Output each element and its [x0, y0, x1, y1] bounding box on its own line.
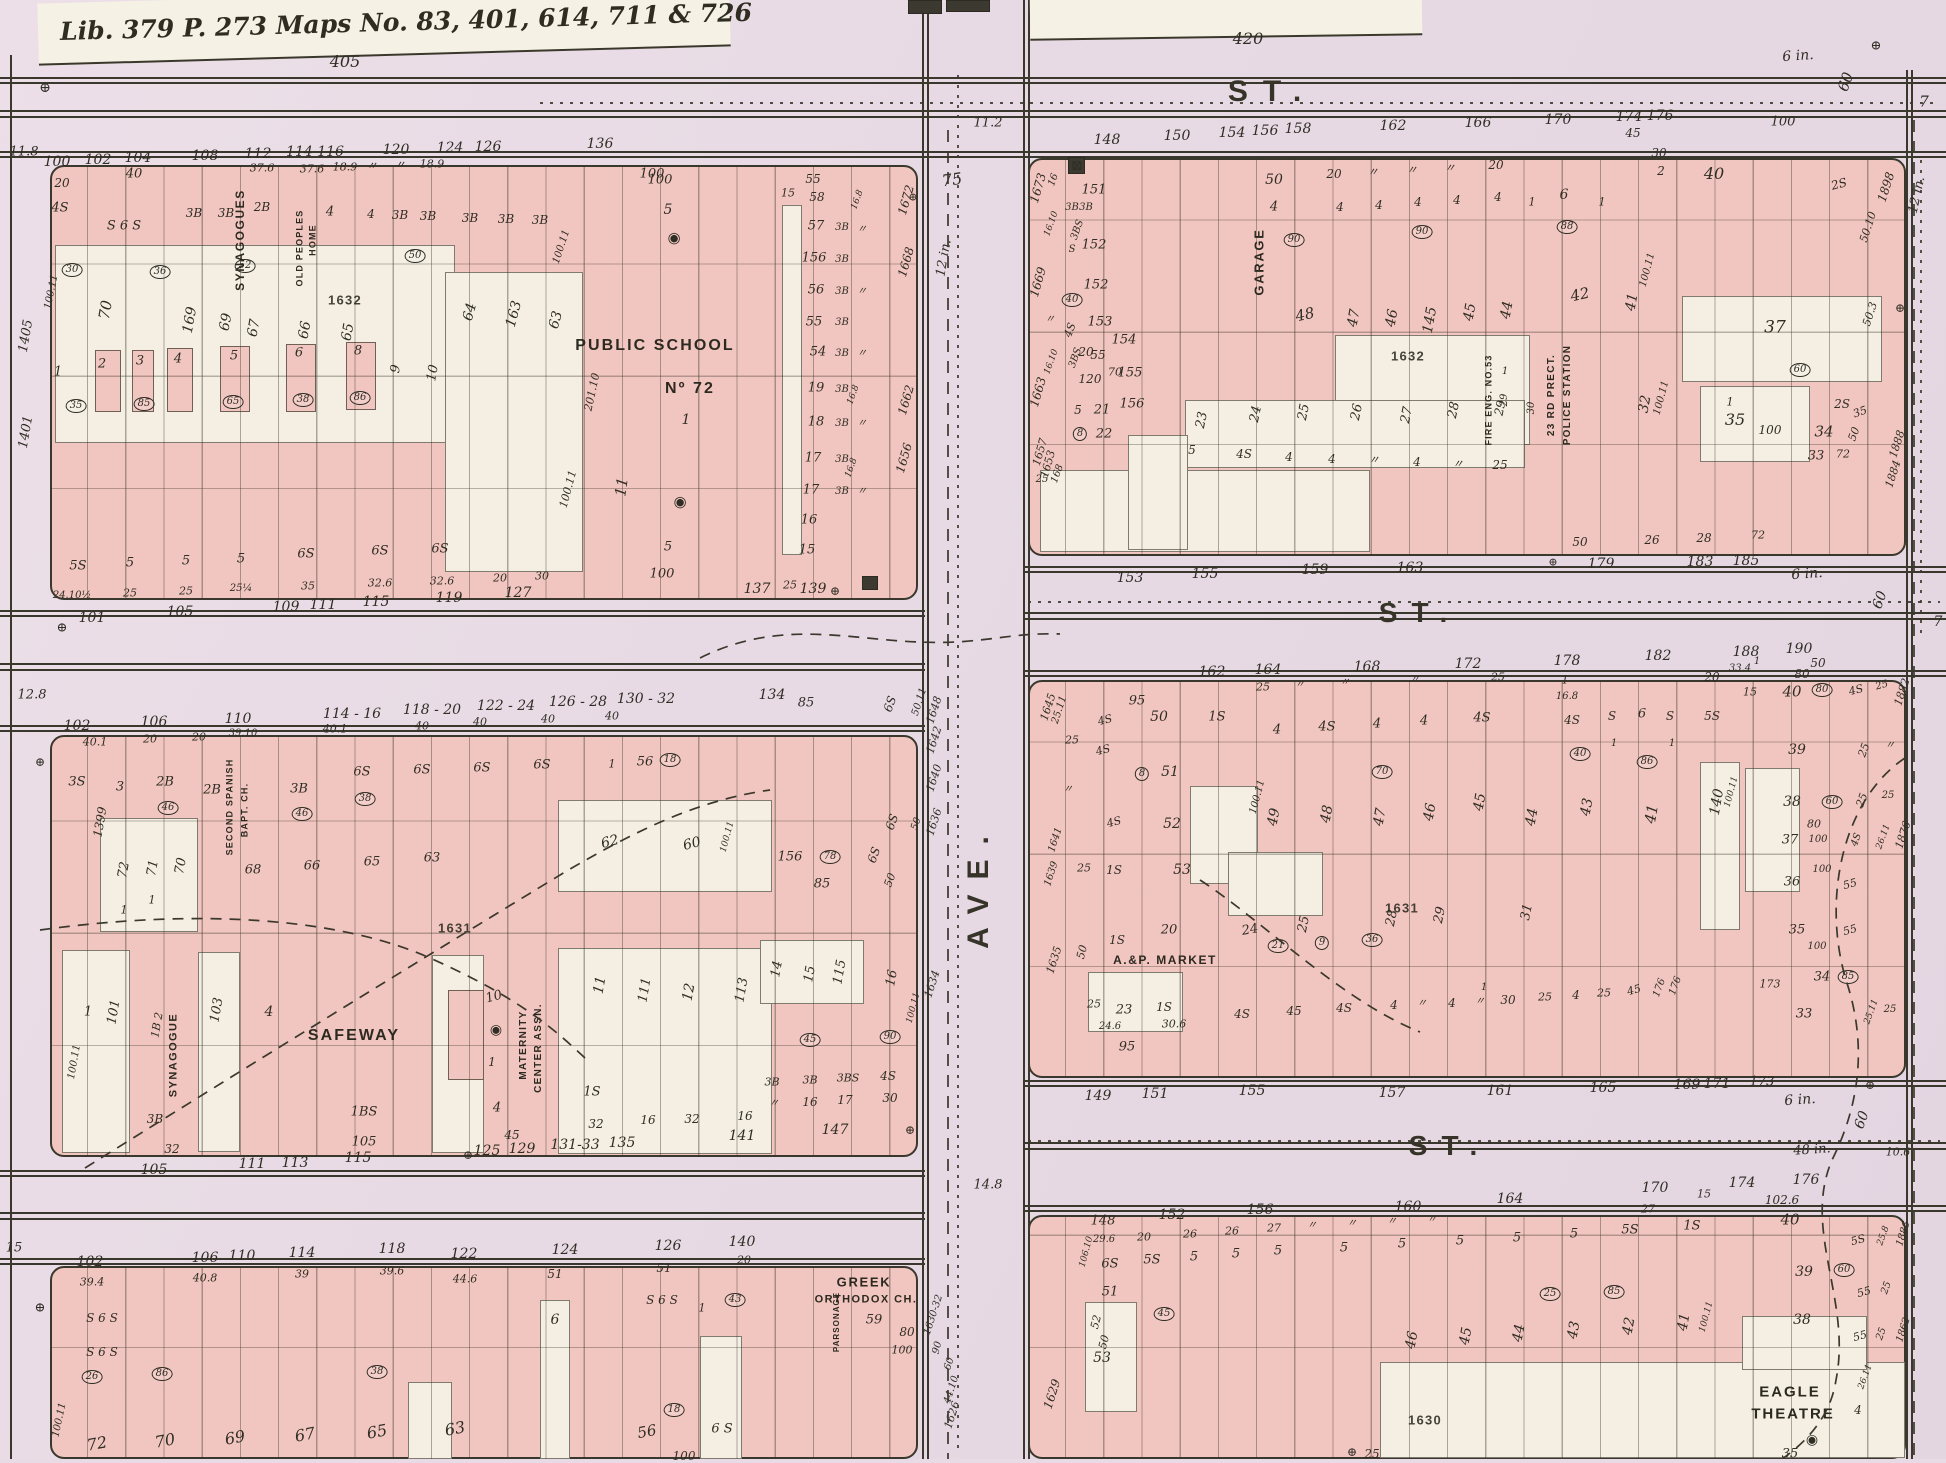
circled-lot-number: 38: [367, 1365, 388, 1379]
lot-annotation: 3B: [498, 213, 514, 225]
lot-annotation: 20: [1488, 159, 1503, 171]
street-label-top: ST.: [1228, 77, 1316, 107]
lot-annotation: 20: [1161, 924, 1178, 937]
lot-annotation: 〃: [1445, 163, 1456, 174]
lot-annotation: 4: [1854, 1404, 1862, 1416]
lot-annotation: 153: [1117, 571, 1144, 585]
lot-annotation: 148: [1091, 1215, 1116, 1228]
lot-annotation: 148: [1094, 133, 1121, 147]
circled-lot-number: 38: [293, 393, 314, 407]
lot-annotation: 5S: [1850, 1233, 1867, 1247]
lot-annotation: 5: [664, 541, 672, 554]
lot-annotation: 102: [77, 1255, 104, 1269]
lot-annotation: 45: [1462, 302, 1479, 322]
lot-annotation: S 6 S: [86, 1312, 118, 1324]
lot-annotation: 1: [1481, 983, 1487, 993]
lot-annotation: 6: [295, 347, 303, 360]
lot-annotation: 100: [892, 1345, 913, 1356]
lot-annotation: 2S: [1830, 176, 1848, 192]
lot-annotation: 53: [1093, 1351, 1111, 1365]
lot-annotation: 40: [1704, 166, 1724, 182]
building-label-parsonage: PARSONAGE: [833, 1292, 841, 1352]
lot-annotation: 5: [237, 553, 245, 566]
circled-lot-number: 26: [82, 1370, 103, 1384]
lot-annotation: 41: [1676, 1312, 1693, 1332]
lot-annotation: 38: [1793, 1313, 1811, 1327]
lot-annotation: 4S: [1336, 1002, 1352, 1014]
lot-annotation: 34: [1814, 425, 1833, 440]
lot-annotation: 1: [1727, 397, 1734, 408]
lot-annotation: 17: [805, 452, 822, 465]
lot-annotation: 45: [504, 1129, 519, 1141]
lot-annotation: 6S: [413, 764, 430, 777]
lot-annotation: 23: [1116, 1004, 1133, 1017]
lot-annotation: 15: [802, 965, 818, 984]
lot-annotation: 27: [1399, 406, 1415, 425]
lot-annotation: 〃: [1045, 315, 1055, 325]
lot-annotation: 39: [295, 1269, 309, 1280]
lot-annotation: 55: [1856, 1285, 1872, 1299]
circled-lot-number: 70: [1372, 765, 1393, 779]
lot-annotation: 28: [1384, 909, 1400, 928]
lot-annotation: 95: [1119, 1041, 1136, 1054]
lot-annotation: 2B: [156, 776, 174, 789]
lot-annotation: 1: [121, 905, 128, 916]
circled-lot-number: 90: [1284, 233, 1305, 247]
lot-annotation: 20: [1078, 346, 1093, 358]
lot-annotation: 20: [143, 734, 157, 745]
lot-annotation: 1S: [1106, 864, 1122, 876]
lot-annotation: 70: [173, 857, 189, 876]
lot-annotation: 183: [1687, 555, 1714, 569]
lot-annotation: 50: [1265, 173, 1283, 187]
lot-annotation: 24.6: [1099, 1022, 1121, 1032]
lot-annotation: 15: [799, 544, 816, 557]
lot-annotation: 157: [1379, 1086, 1406, 1100]
structure-mark: [908, 0, 942, 14]
lot-annotation: 126: [475, 140, 502, 154]
street-rule-line: [0, 669, 925, 671]
lot-annotation: 118 - 20: [403, 703, 461, 717]
lot-annotation: 〃: [1475, 997, 1485, 1007]
lot-annotation: 47: [1372, 807, 1389, 827]
lot-annotation: 4S: [1106, 815, 1123, 829]
lot-annotation: 32: [684, 1113, 699, 1125]
lot-annotation: 158: [1285, 122, 1312, 136]
lot-annotation: S: [1666, 710, 1674, 722]
street-rule-line: [1906, 70, 1908, 1459]
open-lot: [558, 800, 772, 892]
lot-annotation: 1: [1611, 739, 1617, 749]
lot-annotation: 72: [116, 861, 132, 880]
lot-annotation: 114 - 16: [323, 707, 381, 721]
lot-annotation: 32.6: [430, 576, 455, 587]
block-number-1632-east: 1632: [1391, 350, 1425, 363]
lot-annotation: 176: [1647, 109, 1674, 123]
lot-annotation: 6S: [371, 545, 388, 558]
circled-lot-number: 40: [1570, 747, 1591, 761]
lot-annotation: 3B: [532, 214, 548, 226]
lot-annotation: 33: [1796, 1008, 1813, 1021]
lot-annotation: 1S: [583, 1086, 600, 1099]
lot-annotation: 50: [1075, 944, 1089, 960]
building-label: ORTHODOX CH.: [815, 1295, 918, 1306]
lot-annotation: 100: [1771, 116, 1796, 129]
lot-annotation: ⊕: [1871, 40, 1882, 53]
lot-annotation: ⊕: [35, 1302, 46, 1315]
open-lot: [1745, 768, 1800, 892]
lot-annotation: 420: [1233, 31, 1264, 47]
lot-annotation: 5: [1232, 1248, 1240, 1261]
lot-annotation: 〃: [395, 160, 406, 171]
lot-annotation: 5: [1398, 1238, 1406, 1251]
lot-annotation: 〃: [769, 1099, 779, 1109]
open-lot: [1128, 435, 1188, 550]
lot-annotation: 54: [810, 346, 827, 359]
lot-annotation: 14.8: [974, 1179, 1003, 1192]
lot-annotation: 72: [1836, 449, 1850, 460]
lot-annotation: ⊕: [830, 585, 840, 597]
lot-annotation: 25: [1538, 992, 1552, 1003]
lot-annotation: 45: [1625, 127, 1640, 139]
building-label-garage: GARAGE: [1253, 228, 1266, 295]
lot-annotation: 〃: [1307, 1221, 1317, 1231]
lot-annotation: 32: [1637, 394, 1654, 414]
street-rule-line: [927, 0, 929, 1459]
lot-annotation: 3B: [764, 1077, 779, 1088]
lot-annotation: 55: [805, 173, 820, 185]
lot-annotation: 4: [1572, 989, 1580, 1001]
lot-annotation: 3S: [68, 776, 85, 789]
lot-annotation: 50: [1097, 1334, 1111, 1350]
lot-annotation: 51: [1161, 765, 1179, 779]
lot-annotation: 156: [1247, 1203, 1274, 1217]
lot-annotation: 42: [1621, 1316, 1638, 1336]
lot-annotation: 1: [488, 1056, 496, 1068]
block-number-1630-east: 1630: [1408, 1414, 1442, 1427]
lot-annotation: 39: [1788, 743, 1806, 757]
lot-annotation: 24: [1241, 922, 1260, 938]
lot-annotation: 15: [781, 188, 795, 199]
lot-annotation: 4S: [1095, 743, 1112, 757]
circled-lot-number: 60: [1822, 795, 1843, 809]
lot-annotation: 21: [1094, 404, 1111, 417]
street-label-avenue: AVE.: [964, 821, 994, 949]
lot-annotation: 106: [192, 1251, 219, 1265]
lot-annotation: 56: [808, 284, 825, 297]
lot-annotation: 7: [1919, 95, 1929, 110]
lot-annotation: 16: [801, 514, 818, 527]
lot-annotation: 6S: [533, 759, 550, 772]
circled-lot-number: 43: [725, 1293, 746, 1307]
lot-annotation: 25: [1491, 672, 1505, 683]
lot-annotation: 137: [744, 582, 771, 596]
lot-annotation: 101: [79, 611, 106, 625]
lot-annotation: 40: [605, 711, 619, 722]
lot-annotation: 〃: [857, 419, 867, 429]
lot-annotation: 14: [769, 960, 785, 979]
lot-annotation: 170: [1545, 113, 1572, 127]
lot-annotation: 4: [1270, 201, 1278, 214]
lot-annotation: 20: [192, 732, 206, 743]
lot-annotation: 169: [1674, 1078, 1701, 1092]
lot-annotation: 67: [294, 1425, 317, 1444]
lot-annotation: 4S: [1097, 713, 1114, 727]
lot-annotation: 1S: [1683, 1220, 1700, 1233]
lot-annotation: 100: [648, 174, 673, 187]
lot-annotation: 161: [1487, 1084, 1514, 1098]
lot-annotation: 124: [552, 1243, 579, 1257]
circled-lot-number: 18: [664, 1403, 685, 1417]
lot-annotation: 6: [551, 1313, 560, 1327]
lot-annotation: 109: [273, 600, 300, 614]
lot-annotation: 178: [1554, 654, 1581, 668]
lot-annotation: 51: [656, 1262, 671, 1274]
lot-annotation: 149: [1085, 1089, 1112, 1103]
lot-annotation: 33: [1808, 450, 1825, 463]
open-lot: [55, 245, 455, 443]
lot-annotation: 15: [1697, 1189, 1711, 1200]
map-canvas[interactable]: Lib. 379 P. 273 Maps No. 83, 401, 614, 7…: [0, 0, 1946, 1459]
lot-annotation: 39: [1795, 1265, 1813, 1279]
lot-annotation: 30: [1500, 994, 1515, 1006]
lot-annotation: 6S: [353, 766, 370, 779]
lot-annotation: 4: [174, 353, 182, 366]
lot-annotation: 105: [141, 1163, 168, 1177]
street-rule-line: [0, 730, 925, 732]
lot-annotation: 1BS: [351, 1106, 378, 1119]
lot-annotation: 164: [1255, 663, 1282, 677]
lot-annotation: 118: [379, 1242, 406, 1256]
lot-annotation: 172: [1455, 657, 1482, 671]
lot-annotation: 55: [1842, 923, 1858, 937]
lot-annotation: 5: [230, 350, 238, 363]
lot-annotation: 〃: [1387, 1217, 1397, 1227]
circled-lot-number: 78: [820, 850, 841, 864]
lot-annotation: 48: [1294, 306, 1316, 325]
lot-annotation: 3B: [835, 318, 849, 328]
lot-annotation: 44.6: [453, 1274, 478, 1285]
block-number-1631-west: 1631: [438, 922, 472, 935]
lot-annotation: 100: [1812, 865, 1831, 875]
lot-annotation: 5: [1188, 444, 1196, 456]
lot-annotation: 3B: [420, 210, 436, 222]
lot-annotation: 12: [681, 982, 698, 1002]
lot-annotation: ◉: [490, 1023, 502, 1037]
lot-annotation: 51: [1102, 1286, 1119, 1299]
lot-annotation: 56: [636, 1423, 657, 1441]
lot-annotation: 66: [297, 320, 314, 340]
lot-annotation: 35: [1789, 924, 1806, 937]
lot-annotation: 6: [1560, 188, 1569, 202]
lot-annotation: 70: [97, 299, 115, 320]
lot-annotation: 102: [85, 153, 112, 167]
lot-annotation: 1: [1502, 367, 1508, 377]
lot-annotation: 173: [1760, 979, 1781, 990]
lot-annotation: 37: [1764, 320, 1786, 337]
lot-annotation: 1S: [1208, 711, 1225, 724]
lot-annotation: 1: [1562, 675, 1569, 686]
lot-annotation: 174: [1729, 1176, 1756, 1190]
lot-annotation: 4: [1413, 456, 1421, 468]
lot-annotation: 85: [814, 878, 831, 891]
circled-lot-number: 36: [150, 265, 171, 279]
lot-annotation: 179: [1588, 557, 1615, 571]
lot-annotation: 102: [64, 719, 91, 733]
lot-annotation: ⊠: [1071, 159, 1083, 173]
lot-annotation: 3B: [218, 207, 234, 219]
lot-annotation: 20: [1704, 671, 1719, 683]
lot-annotation: 162: [1199, 665, 1226, 679]
lot-annotation: 25¼: [230, 584, 252, 594]
street-label-middle: ST.: [1379, 599, 1461, 627]
lot-annotation: 71: [145, 859, 161, 878]
lot-annotation: 3B: [147, 1113, 163, 1125]
margin-liber-strip: Lib. 379 P. 273 Maps No. 83, 401, 614, 7…: [37, 0, 730, 66]
lot-annotation: 46: [1422, 802, 1439, 822]
lot-annotation: 164: [1497, 1192, 1524, 1206]
lot-annotation: 4: [326, 206, 334, 219]
circled-lot-number: 86: [350, 391, 371, 405]
lot-annotation: 27: [1641, 1204, 1655, 1215]
lot-annotation: 18.9: [420, 159, 445, 170]
lot-annotation: 40: [473, 717, 487, 728]
circled-lot-number: 85: [1604, 1285, 1625, 1299]
building-label-synagogue: SYNAGOGUE: [169, 1013, 180, 1097]
lot-annotation: 111: [310, 598, 337, 612]
lot-annotation: 5: [1456, 1235, 1464, 1248]
lot-annotation: 65: [364, 856, 381, 869]
lot-annotation: 131-33: [550, 1138, 599, 1152]
lot-annotation: 114 116: [286, 145, 344, 159]
lot-annotation: 6S: [882, 694, 899, 713]
lot-annotation: 〃: [1453, 459, 1464, 470]
circled-lot-number: 86: [1637, 755, 1658, 769]
lot-annotation: 25: [1036, 475, 1049, 485]
open-lot: [700, 1336, 742, 1459]
lot-annotation: 39.6: [380, 1266, 405, 1277]
lot-annotation: 1: [84, 1006, 92, 1019]
lot-annotation: 80: [1794, 668, 1809, 680]
lot-annotation: 60: [1870, 589, 1889, 611]
lot-annotation: 1: [682, 413, 691, 427]
lot-annotation: 100: [1759, 424, 1782, 436]
lot-annotation: 10.6: [1886, 1147, 1911, 1158]
lot-annotation: 18: [808, 416, 825, 429]
lot-annotation: 1: [1754, 657, 1760, 667]
lot-annotation: 168: [1354, 660, 1381, 674]
lot-annotation: S 6 S: [646, 1294, 678, 1306]
lot-annotation: 37: [1782, 834, 1799, 847]
lot-annotation: 156: [1252, 124, 1279, 138]
lot-annotation: 46: [1404, 1330, 1421, 1350]
lot-annotation: 10: [425, 364, 441, 383]
lot-annotation: 20: [1137, 1232, 1151, 1243]
circled-lot-number: 90: [1412, 225, 1433, 239]
lot-annotation: 15: [1743, 687, 1757, 698]
lot-annotation: 50: [1572, 536, 1587, 548]
lot-annotation: ◉: [673, 495, 686, 510]
lot-annotation: 11: [613, 477, 631, 498]
lot-annotation: 11.8: [10, 146, 39, 159]
lot-annotation: 3: [136, 355, 144, 368]
lot-annotation: 120: [383, 143, 410, 157]
lot-annotation: 44: [1524, 807, 1541, 827]
circled-lot-number: 45: [800, 1033, 821, 1047]
circled-lot-number: 46: [158, 801, 179, 815]
lot-annotation: ⊕: [1548, 557, 1557, 568]
lot-annotation: 58: [809, 191, 824, 203]
lot-annotation: 30: [1527, 402, 1537, 415]
open-lot: [782, 205, 802, 555]
lot-annotation: 130 - 32: [617, 692, 675, 706]
lot-annotation: 134: [759, 688, 786, 702]
open-lot: [1682, 296, 1882, 382]
lot-annotation: 1S: [1109, 934, 1125, 946]
lot-annotation: 12.8: [18, 689, 47, 702]
lot-annotation: 190: [1786, 642, 1813, 656]
lot-annotation: 51: [547, 1268, 562, 1280]
lot-annotation: 126 - 28: [549, 695, 607, 709]
circled-lot-number: 60: [1834, 1263, 1855, 1277]
lot-annotation: 25: [1087, 999, 1101, 1010]
lot-annotation: 5: [1513, 1232, 1521, 1245]
city-block: [50, 1266, 918, 1459]
lot-annotation: 39.10: [229, 729, 258, 739]
circled-lot-number: 65: [223, 395, 244, 409]
lot-annotation: 〃: [1368, 167, 1379, 178]
lot-annotation: 154: [1112, 334, 1137, 347]
lot-annotation: 119: [436, 591, 463, 605]
lot-annotation: 〃: [1369, 455, 1380, 466]
building-label-public-school: PUBLIC SCHOOL: [575, 338, 735, 354]
lot-annotation: 1: [1529, 197, 1536, 208]
lot-annotation: 49: [1266, 807, 1283, 827]
lot-annotation: 〃: [857, 487, 867, 497]
building-label-safeway: SAFEWAY: [308, 1028, 400, 1044]
lot-annotation: 75: [941, 171, 963, 190]
lot-annotation: 5: [1340, 1242, 1348, 1255]
lot-annotation: 151: [1142, 1087, 1169, 1101]
lot-annotation: 12 in.: [1907, 175, 1927, 214]
lot-annotation: 111: [239, 1157, 266, 1171]
lot-annotation: 3B: [835, 255, 849, 265]
circled-lot-number: 38: [355, 792, 376, 806]
lot-annotation: 〃: [1063, 785, 1073, 795]
lot-annotation: 106: [141, 715, 168, 729]
lot-annotation: 5S: [1704, 710, 1720, 722]
lot-annotation: 52: [1089, 1314, 1103, 1330]
lot-annotation: 114: [289, 1246, 316, 1260]
lot-annotation: 1405: [17, 319, 36, 354]
lot-annotation: 41: [1643, 803, 1661, 824]
lot-annotation: 115: [345, 1151, 372, 1165]
lot-annotation: 25: [1884, 1005, 1897, 1015]
boundary-dash: [700, 634, 1060, 658]
circled-lot-number: 45: [1154, 1307, 1175, 1321]
lot-annotation: 4S: [880, 1070, 896, 1082]
lot-annotation: 3B: [835, 419, 849, 429]
lot-annotation: 35: [1725, 412, 1745, 428]
lot-annotation: 28: [1446, 401, 1462, 420]
street-rule-line: [0, 610, 925, 612]
lot-annotation: 165: [1590, 1081, 1617, 1095]
lot-annotation: 122 - 24: [477, 699, 535, 713]
lot-annotation: ⊕: [35, 756, 45, 768]
lot-annotation: 40: [415, 721, 429, 732]
lot-annotation: 46: [1384, 308, 1401, 328]
lot-annotation: 16: [640, 1114, 655, 1126]
